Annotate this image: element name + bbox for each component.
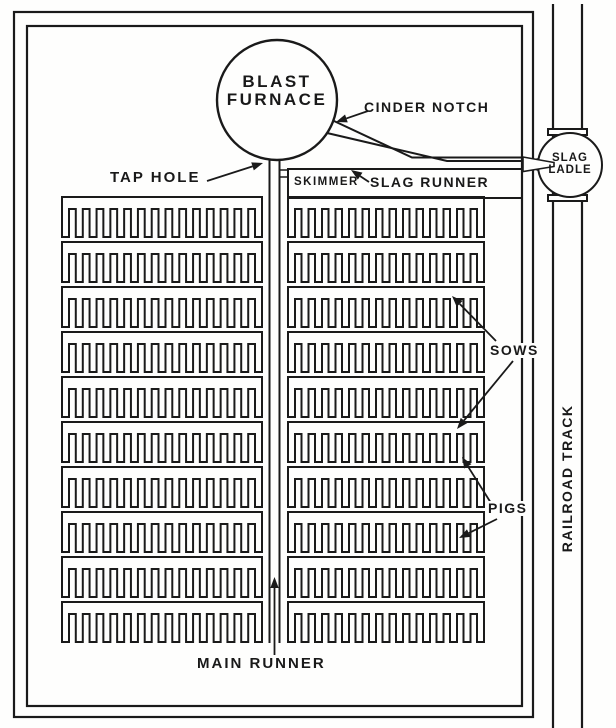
pig-bed-row-left-4 [62,332,262,372]
sows-label: SOWS [488,343,541,358]
railroad-track-label: RAILROAD TRACK [560,396,575,561]
blast-furnace-label-line2: FURNACE [217,91,337,109]
pig-bed-row-right-8 [288,512,484,552]
tap-hole-label: TAP HOLE [110,170,200,186]
slag-ladle-label: SLAG LADLE [540,152,600,176]
cinder-notch-label: CINDER NOTCH [364,100,489,115]
slag-ladle-label-line2: LADLE [540,164,600,176]
pig-bed-row-right-9 [288,557,484,597]
skimmer-dam [280,170,289,177]
pig-bed-row-left-6 [62,422,262,462]
pig-bed-row-right-4 [288,332,484,372]
main-runner-arrow [270,577,278,655]
main-runner-label: MAIN RUNNER [197,656,326,672]
pig-bed-row-right-2 [288,242,484,282]
sows-arrow-upper [452,296,496,341]
pig-bed-row-right-5 [288,377,484,417]
pig-bed-row-right-3 [288,287,484,327]
tap-hole-arrow [207,162,263,181]
pig-bed-row-left-2 [62,242,262,282]
pig-bed-row-right-7 [288,467,484,507]
blast-furnace-label-line1: BLAST [217,73,337,91]
pig-bed-row-left-3 [62,287,262,327]
pig-bed-diagram-canvas [0,0,616,728]
pig-bed-row-right-6 [288,422,484,462]
slag-runner-label: SLAG RUNNER [370,175,489,190]
pig-bed-row-left-9 [62,557,262,597]
diagram-page: BLAST FURNACE CINDER NOTCH TAP HOLE SKIM… [0,0,616,728]
pig-bed-row-left-10 [62,602,262,642]
pig-bed-row-left-1 [62,197,262,237]
pigs-label: PIGS [486,501,529,516]
slag-ladle-label-line1: SLAG [540,152,600,164]
pig-bed-row-left-7 [62,467,262,507]
pig-bed-row-left-8 [62,512,262,552]
pig-bed-row-right-1 [288,197,484,237]
pig-bed-row-left-5 [62,377,262,417]
pig-bed-row-right-10 [288,602,484,642]
cinder-slag-runner-upper [334,121,522,158]
blast-furnace-label: BLAST FURNACE [217,73,337,109]
skimmer-label: SKIMMER [294,176,359,188]
